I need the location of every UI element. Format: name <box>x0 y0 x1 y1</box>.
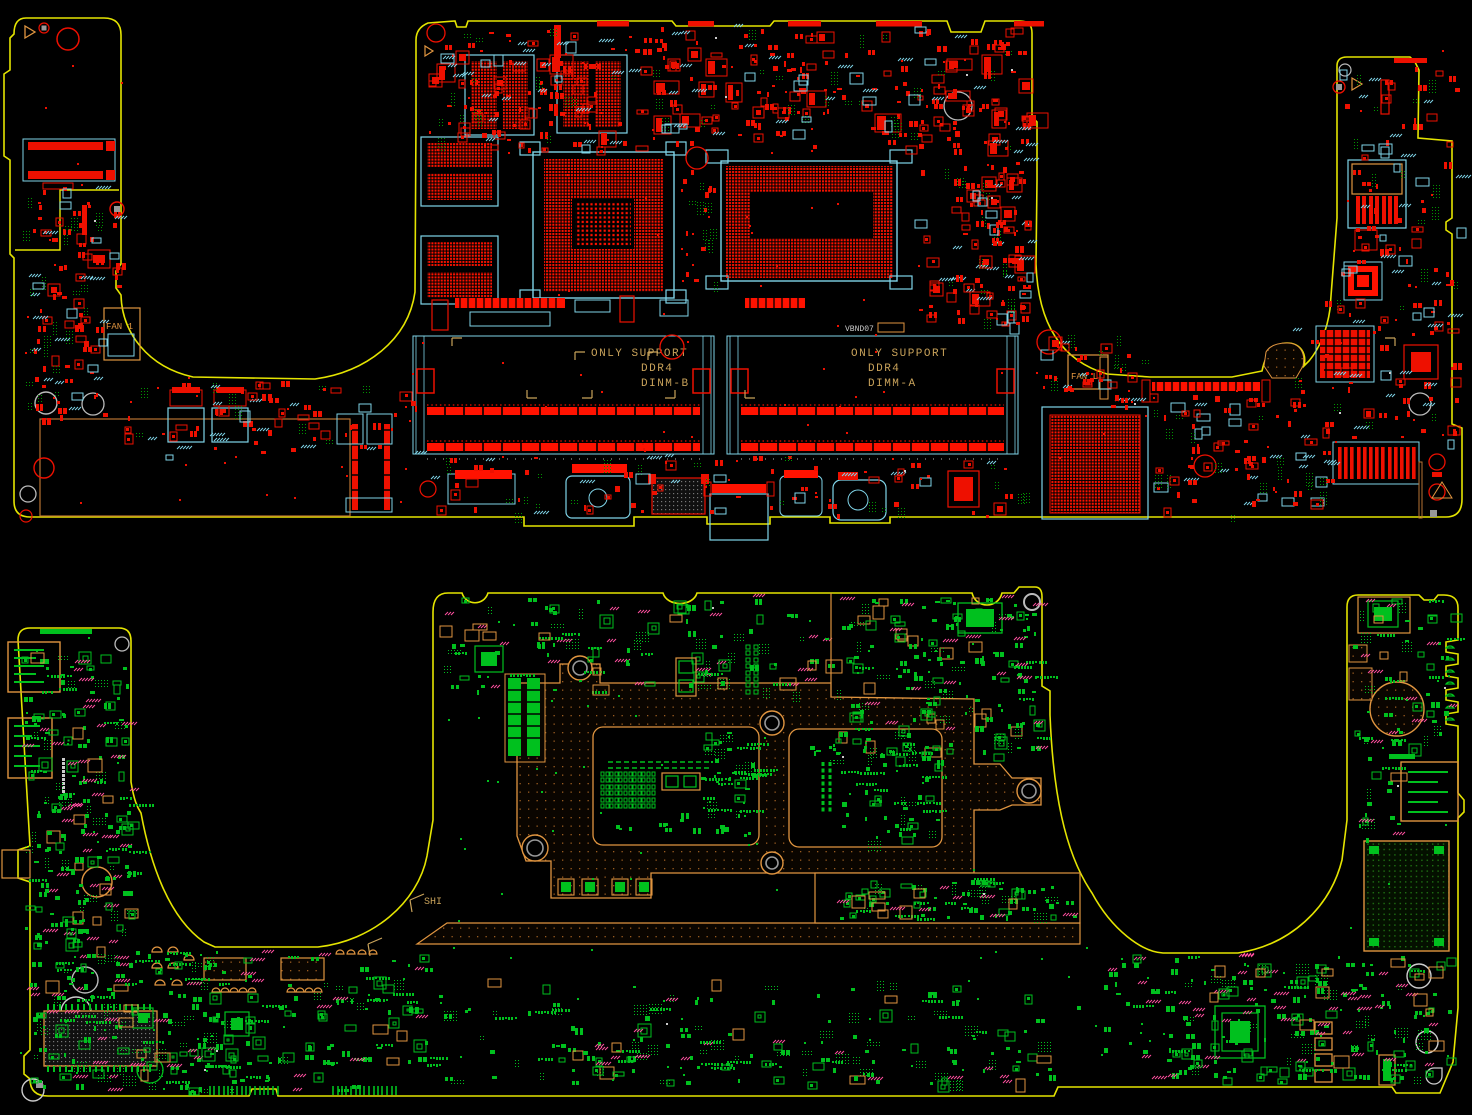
svg-text:FAN 1: FAN 1 <box>106 322 133 332</box>
svg-text:SHI: SHI <box>424 897 442 908</box>
svg-text:ONLY SUPPORT: ONLY SUPPORT <box>591 348 688 360</box>
svg-text:VBND07: VBND07 <box>845 325 874 334</box>
svg-text:DINM-B: DINM-B <box>641 378 690 390</box>
svg-text:DIMM-A: DIMM-A <box>868 378 917 390</box>
svg-text:ONLY SUPPORT: ONLY SUPPORT <box>851 348 948 360</box>
svg-text:DDR4: DDR4 <box>641 363 673 375</box>
svg-text:DDR4: DDR4 <box>868 363 900 375</box>
